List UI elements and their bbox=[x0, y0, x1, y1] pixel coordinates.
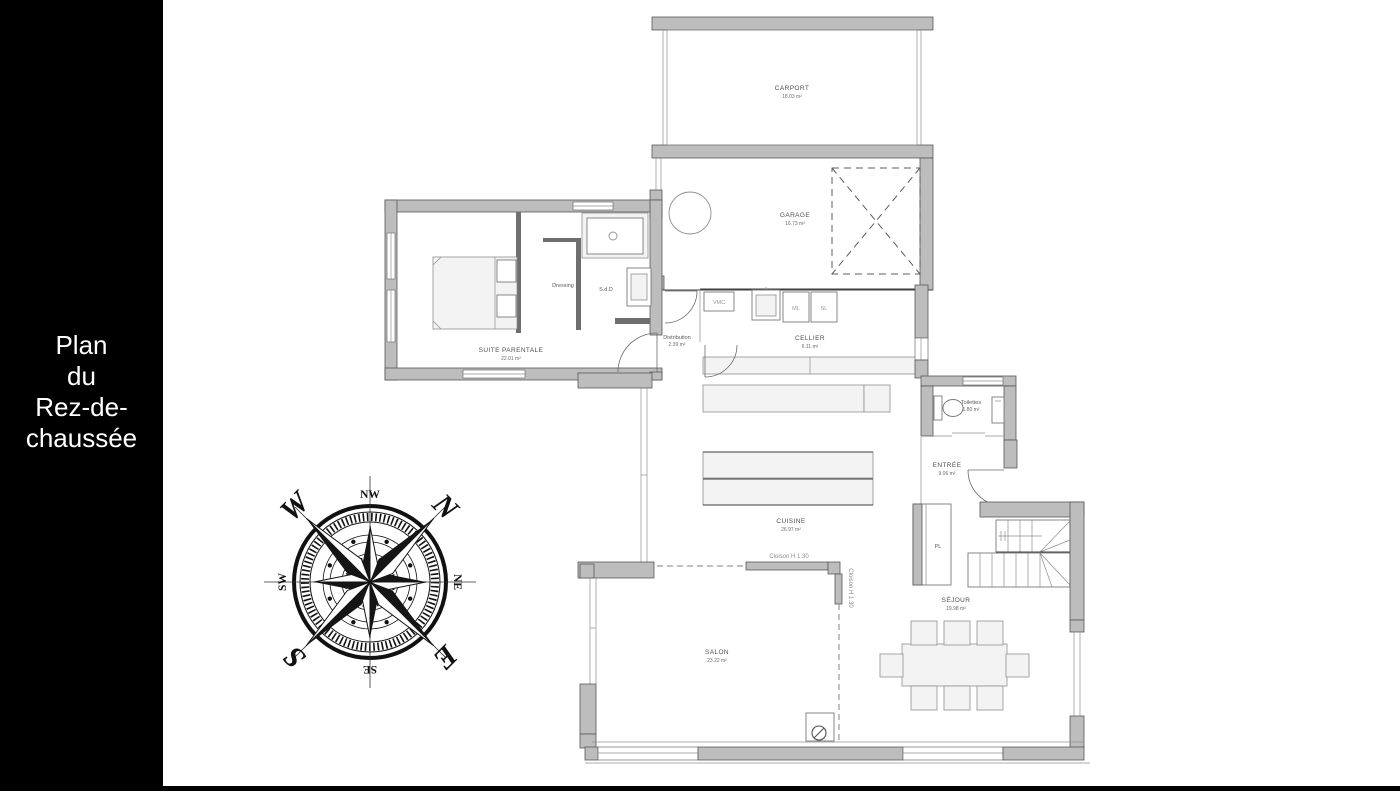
cloison-h-label: Cloison H 1.30 bbox=[769, 554, 809, 560]
stove bbox=[806, 713, 834, 741]
room-name: SUITE PARENTALE bbox=[479, 347, 544, 354]
bed bbox=[433, 257, 517, 329]
staircase bbox=[968, 502, 1084, 620]
room-area: 9.06 m² bbox=[939, 471, 956, 477]
room-area: 1.80 m² bbox=[963, 407, 980, 413]
room-name: CELLIER bbox=[795, 335, 825, 342]
door-garage bbox=[665, 291, 697, 323]
toilettes-sink bbox=[992, 397, 1004, 423]
room-cellier: VMC ML SL CELLIER 6.11 m² bbox=[700, 285, 928, 378]
room-area: 22.01 m² bbox=[501, 356, 521, 362]
room-name: SÉJOUR bbox=[942, 595, 971, 604]
label-distribution: Distribution 2.39 m² bbox=[663, 335, 691, 348]
label-entree: ENTRÉE 9.06 m² bbox=[933, 460, 962, 477]
left-sidebar: Plan du Rez-de- chaussée bbox=[0, 0, 163, 791]
front-door bbox=[968, 470, 1004, 506]
label-salon: SALON 23.22 m² bbox=[705, 649, 729, 664]
room-name: ENTRÉE bbox=[933, 460, 962, 469]
room-entree: ENTRÉE 9.06 m² bbox=[933, 440, 1084, 517]
room-area: 26.97 m² bbox=[781, 527, 801, 533]
label-cuisine: CUISINE 26.97 m² bbox=[776, 518, 805, 533]
room-salon: SALON 23.22 m² bbox=[580, 564, 834, 748]
room-suite-parentale: SUITE PARENTALE 22.01 m² Dressing S.d.D bbox=[385, 200, 662, 380]
compass-rose: N E S W NW NE SE SW bbox=[196, 408, 544, 756]
page-title-line: chaussée bbox=[0, 423, 163, 454]
shower bbox=[582, 213, 648, 258]
room-area: 19.98 m² bbox=[946, 606, 966, 612]
compass-ne: NE bbox=[451, 574, 463, 590]
cellier-counter bbox=[703, 357, 916, 374]
label-carport: CARPORT 18.03 m² bbox=[775, 85, 809, 100]
room-name: CARPORT bbox=[775, 85, 809, 92]
room-garage: GARAGE 16.73 m² bbox=[650, 158, 933, 290]
compass-se: SE bbox=[363, 663, 377, 675]
room-sejour: SÉJOUR 19.98 m² bbox=[880, 595, 1084, 748]
label-cellier: CELLIER 6.11 m² bbox=[795, 335, 825, 350]
label-garage: GARAGE 16.73 m² bbox=[780, 212, 810, 227]
label-dressing: Dressing bbox=[552, 283, 574, 289]
room-name: GARAGE bbox=[780, 212, 810, 219]
toilet bbox=[934, 396, 963, 420]
page-title-line: Rez-de- bbox=[0, 392, 163, 423]
door-suite bbox=[618, 333, 657, 372]
sl-label: SL bbox=[821, 306, 828, 312]
room-toilettes: Toilettes 1.80 m² bbox=[921, 376, 1016, 440]
room-area: 2.39 m² bbox=[669, 342, 686, 348]
water-heater bbox=[669, 192, 711, 234]
room-area: 18.03 m² bbox=[782, 94, 802, 100]
label-sdd: S.d.D bbox=[599, 287, 613, 293]
kitchen-counter bbox=[703, 385, 890, 412]
page-title-line: Plan bbox=[0, 330, 163, 361]
room-name: SALON bbox=[705, 649, 729, 656]
vanity-sink bbox=[627, 268, 651, 306]
label-toilettes: Toilettes 1.80 m² bbox=[961, 400, 981, 413]
bottom-divider bbox=[0, 786, 1400, 791]
dining-table bbox=[880, 621, 1029, 710]
ceiling-hatch bbox=[832, 168, 920, 274]
room-cuisine: CUISINE 26.97 m² bbox=[578, 373, 921, 578]
label-suite: SUITE PARENTALE 22.01 m² bbox=[479, 347, 544, 362]
page-title-line: du bbox=[0, 361, 163, 392]
closet-pl: PL bbox=[913, 504, 951, 585]
south-wall bbox=[585, 742, 1090, 763]
kitchen-island bbox=[703, 452, 873, 505]
cellier-sink bbox=[752, 287, 780, 320]
room-name: CUISINE bbox=[776, 518, 805, 525]
floor-plan-canvas: CARPORT 18.03 m² GARAGE 16.73 m² VMC bbox=[163, 0, 1400, 791]
room-area: 6.11 m² bbox=[802, 344, 819, 350]
label-pl: PL bbox=[935, 544, 942, 550]
page-title: Plan du Rez-de- chaussée bbox=[0, 330, 163, 454]
label-sejour: SÉJOUR 19.98 m² bbox=[942, 595, 971, 612]
floor-plan: CARPORT 18.03 m² GARAGE 16.73 m² VMC bbox=[163, 0, 1400, 791]
ml-label: ML bbox=[792, 306, 800, 312]
room-carport: CARPORT 18.03 m² bbox=[652, 17, 933, 158]
cloison-v-label: Cloison H 1.30 bbox=[847, 568, 853, 608]
compass-nw: NW bbox=[360, 489, 380, 501]
room-name: Distribution bbox=[663, 335, 691, 341]
vmc-label: VMC bbox=[713, 300, 725, 306]
compass-sw: SW bbox=[277, 573, 289, 591]
room-area: 16.73 m² bbox=[785, 221, 805, 227]
room-area: 23.22 m² bbox=[707, 658, 727, 664]
room-name: Toilettes bbox=[961, 400, 981, 406]
